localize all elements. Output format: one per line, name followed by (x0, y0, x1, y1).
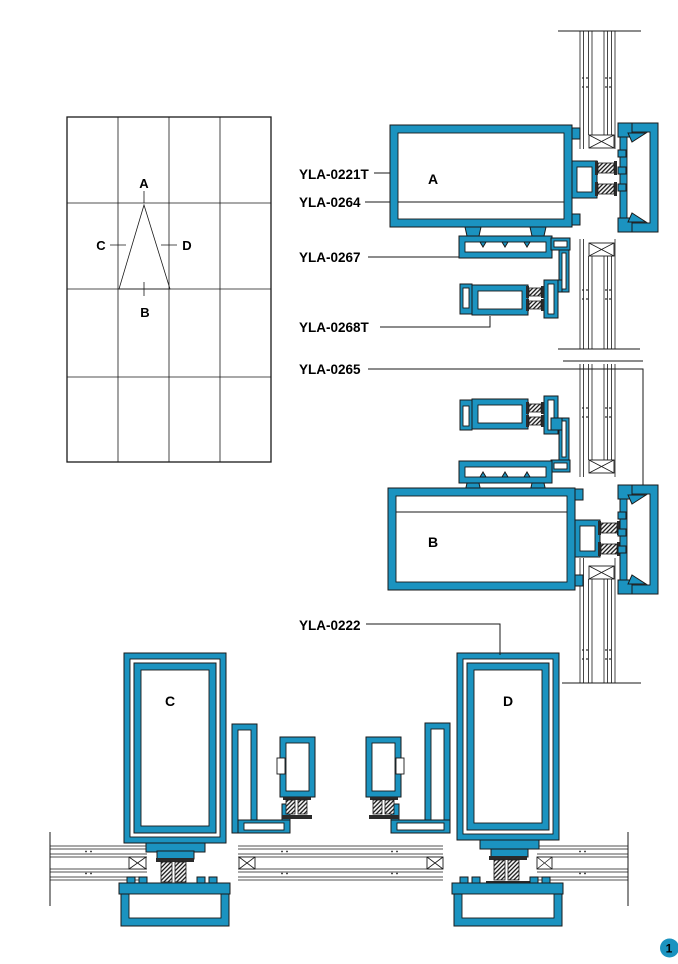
bolt-plate (282, 815, 312, 819)
cap-tooth (472, 877, 480, 883)
bolt-plate (598, 521, 601, 535)
section-a-letter: A (428, 171, 438, 187)
bolt-plate (595, 161, 598, 175)
section-a-mullion: A (390, 123, 658, 232)
glass-pane-lines (238, 846, 443, 880)
glazing-dots (582, 407, 611, 418)
bolt-plate (541, 415, 544, 427)
profile-tab (575, 489, 583, 500)
bolt-connection (529, 404, 541, 412)
profile-tab (572, 214, 580, 225)
bolt-connection (508, 860, 519, 880)
badge-number: 1 (666, 942, 673, 956)
cap-tooth (618, 512, 626, 519)
mullion-cavity (398, 133, 564, 219)
bolt-connection (601, 523, 617, 533)
part-label-yla-0264: YLA-0264 (299, 195, 361, 210)
bolt-plate (614, 182, 617, 196)
part-label-yla-0222: YLA-0222 (299, 618, 361, 633)
transition-foot (530, 227, 546, 236)
part-label-yla-0268t: YLA-0268T (299, 320, 370, 335)
bolt-plate (489, 856, 527, 860)
section-c: C (119, 653, 315, 926)
section-b-transom-assembly (459, 396, 570, 492)
bolt-connection (175, 862, 186, 882)
section-a-transom-assembly (459, 227, 570, 318)
section-d-letter: D (503, 693, 513, 709)
cap-tooth (530, 877, 538, 883)
cap-tooth (542, 877, 550, 883)
bolt-plate (598, 542, 601, 556)
bolt-connection (161, 862, 172, 882)
cap-tooth (618, 167, 626, 174)
overview-grid: A B C D (67, 117, 271, 462)
cap-plate (452, 883, 563, 894)
bolt-connection (529, 288, 541, 296)
bolt-plate (156, 858, 194, 862)
opening-triangle-marker (119, 205, 170, 289)
cap-tooth (139, 877, 147, 883)
marker-b: B (140, 305, 149, 320)
bolt-connection (298, 800, 307, 814)
glazing-dots (582, 77, 611, 88)
bolt-plate (370, 797, 398, 800)
part-label-yla-0267: YLA-0267 (299, 250, 361, 265)
glazing-dots (582, 289, 611, 300)
bolt-plate (369, 815, 399, 819)
mullion-cavity (396, 496, 567, 582)
bolt-plate (283, 797, 311, 800)
cap-tooth (460, 877, 468, 883)
profile-opening (277, 758, 285, 774)
cap-tooth (618, 546, 626, 553)
cap-tooth (618, 184, 626, 191)
bolt-connection (494, 860, 505, 880)
glass-pane-lines (580, 31, 615, 149)
page-badge: 1 (660, 939, 678, 958)
section-d: D (366, 653, 563, 926)
glazing-dots (582, 649, 611, 660)
connector-neck (480, 840, 539, 849)
part-label-yla-0221t: YLA-0221T (299, 167, 370, 182)
cover-cap-c (119, 877, 230, 926)
marker-c: C (96, 238, 106, 253)
grid-lines (67, 117, 271, 462)
marker-d: D (182, 238, 191, 253)
bolt-plate (614, 161, 617, 175)
bolt-connection (598, 163, 614, 173)
cap-plate (119, 883, 230, 894)
section-c-side-assembly (232, 724, 315, 833)
transition-foot (465, 227, 481, 236)
bolt-plate (541, 286, 544, 298)
marker-a: A (139, 176, 149, 191)
cover-cap-d (452, 877, 563, 926)
profile-opening (396, 758, 404, 774)
cap-tooth (127, 877, 135, 883)
bolt-connection (601, 544, 617, 554)
section-d-side-assembly (366, 723, 450, 833)
bolt-plate (595, 182, 598, 196)
cap-tooth (618, 529, 626, 536)
bolt-connection (286, 800, 295, 814)
bolt-connection (385, 800, 394, 814)
bolt-plate (526, 402, 529, 414)
section-b-letter: B (428, 534, 438, 550)
bolt-connection (529, 417, 541, 425)
cap-tooth (209, 877, 217, 883)
bolt-plate (526, 299, 529, 311)
cap-tooth (618, 150, 626, 157)
profile-tab (572, 128, 580, 139)
cap-tooth (197, 877, 205, 883)
bolt-plate (541, 402, 544, 414)
section-c-letter: C (165, 693, 175, 709)
part-label-yla-0265: YLA-0265 (299, 362, 361, 377)
bolt-plate (526, 286, 529, 298)
bolt-connection (598, 184, 614, 194)
bolt-plate (526, 415, 529, 427)
bolt-connection (373, 800, 382, 814)
section-b-mullion: B (388, 485, 658, 594)
profile-tab (575, 575, 583, 586)
cover-cap-a (618, 123, 658, 232)
bolt-plate (541, 299, 544, 311)
cover-cap-b (618, 485, 658, 594)
bolt-connection (529, 301, 541, 309)
section-detail-drawing: A B C D (0, 0, 678, 964)
